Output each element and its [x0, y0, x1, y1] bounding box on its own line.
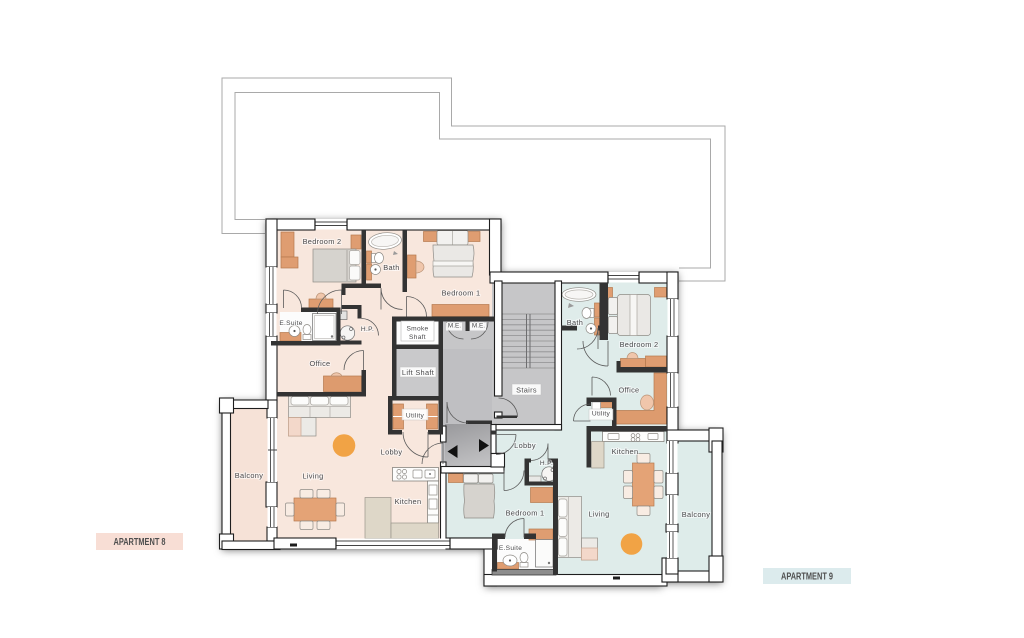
svg-text:Utility: Utility [592, 411, 611, 418]
svg-text:Balcony: Balcony [235, 471, 263, 480]
svg-text:APARTMENT 9: APARTMENT 9 [781, 571, 833, 583]
svg-text:Bedroom 2: Bedroom 2 [620, 340, 659, 349]
svg-text:Smoke: Smoke [406, 326, 428, 333]
svg-text:Lobby: Lobby [381, 448, 403, 457]
svg-text:H.P.: H.P. [361, 326, 374, 333]
svg-text:M.E.: M.E. [448, 323, 461, 330]
svg-text:Stairs: Stairs [516, 386, 537, 395]
svg-text:E.Suite: E.Suite [279, 320, 302, 327]
svg-text:H.P.: H.P. [540, 460, 553, 467]
svg-text:M.E.: M.E. [472, 323, 485, 330]
svg-text:Living: Living [588, 510, 609, 519]
svg-text:Balcony: Balcony [682, 510, 710, 519]
svg-text:Kitchen: Kitchen [612, 447, 639, 456]
svg-text:APARTMENT 8: APARTMENT 8 [114, 536, 166, 548]
svg-text:Kitchen: Kitchen [395, 497, 422, 506]
svg-text:Bedroom 2: Bedroom 2 [303, 237, 342, 246]
svg-text:Bath: Bath [383, 263, 399, 272]
svg-text:Office: Office [310, 359, 331, 368]
svg-text:Shaft: Shaft [409, 334, 426, 341]
svg-text:Bedroom 1: Bedroom 1 [442, 289, 481, 298]
svg-text:E.Suite: E.Suite [499, 545, 522, 552]
svg-text:Bedroom 1: Bedroom 1 [506, 509, 545, 518]
svg-text:Utility: Utility [406, 413, 425, 420]
svg-text:Bath: Bath [567, 318, 583, 327]
svg-text:Living: Living [302, 472, 323, 481]
svg-text:Office: Office [619, 386, 640, 395]
svg-text:Lobby: Lobby [514, 441, 536, 450]
svg-text:Lift Shaft: Lift Shaft [402, 368, 434, 377]
